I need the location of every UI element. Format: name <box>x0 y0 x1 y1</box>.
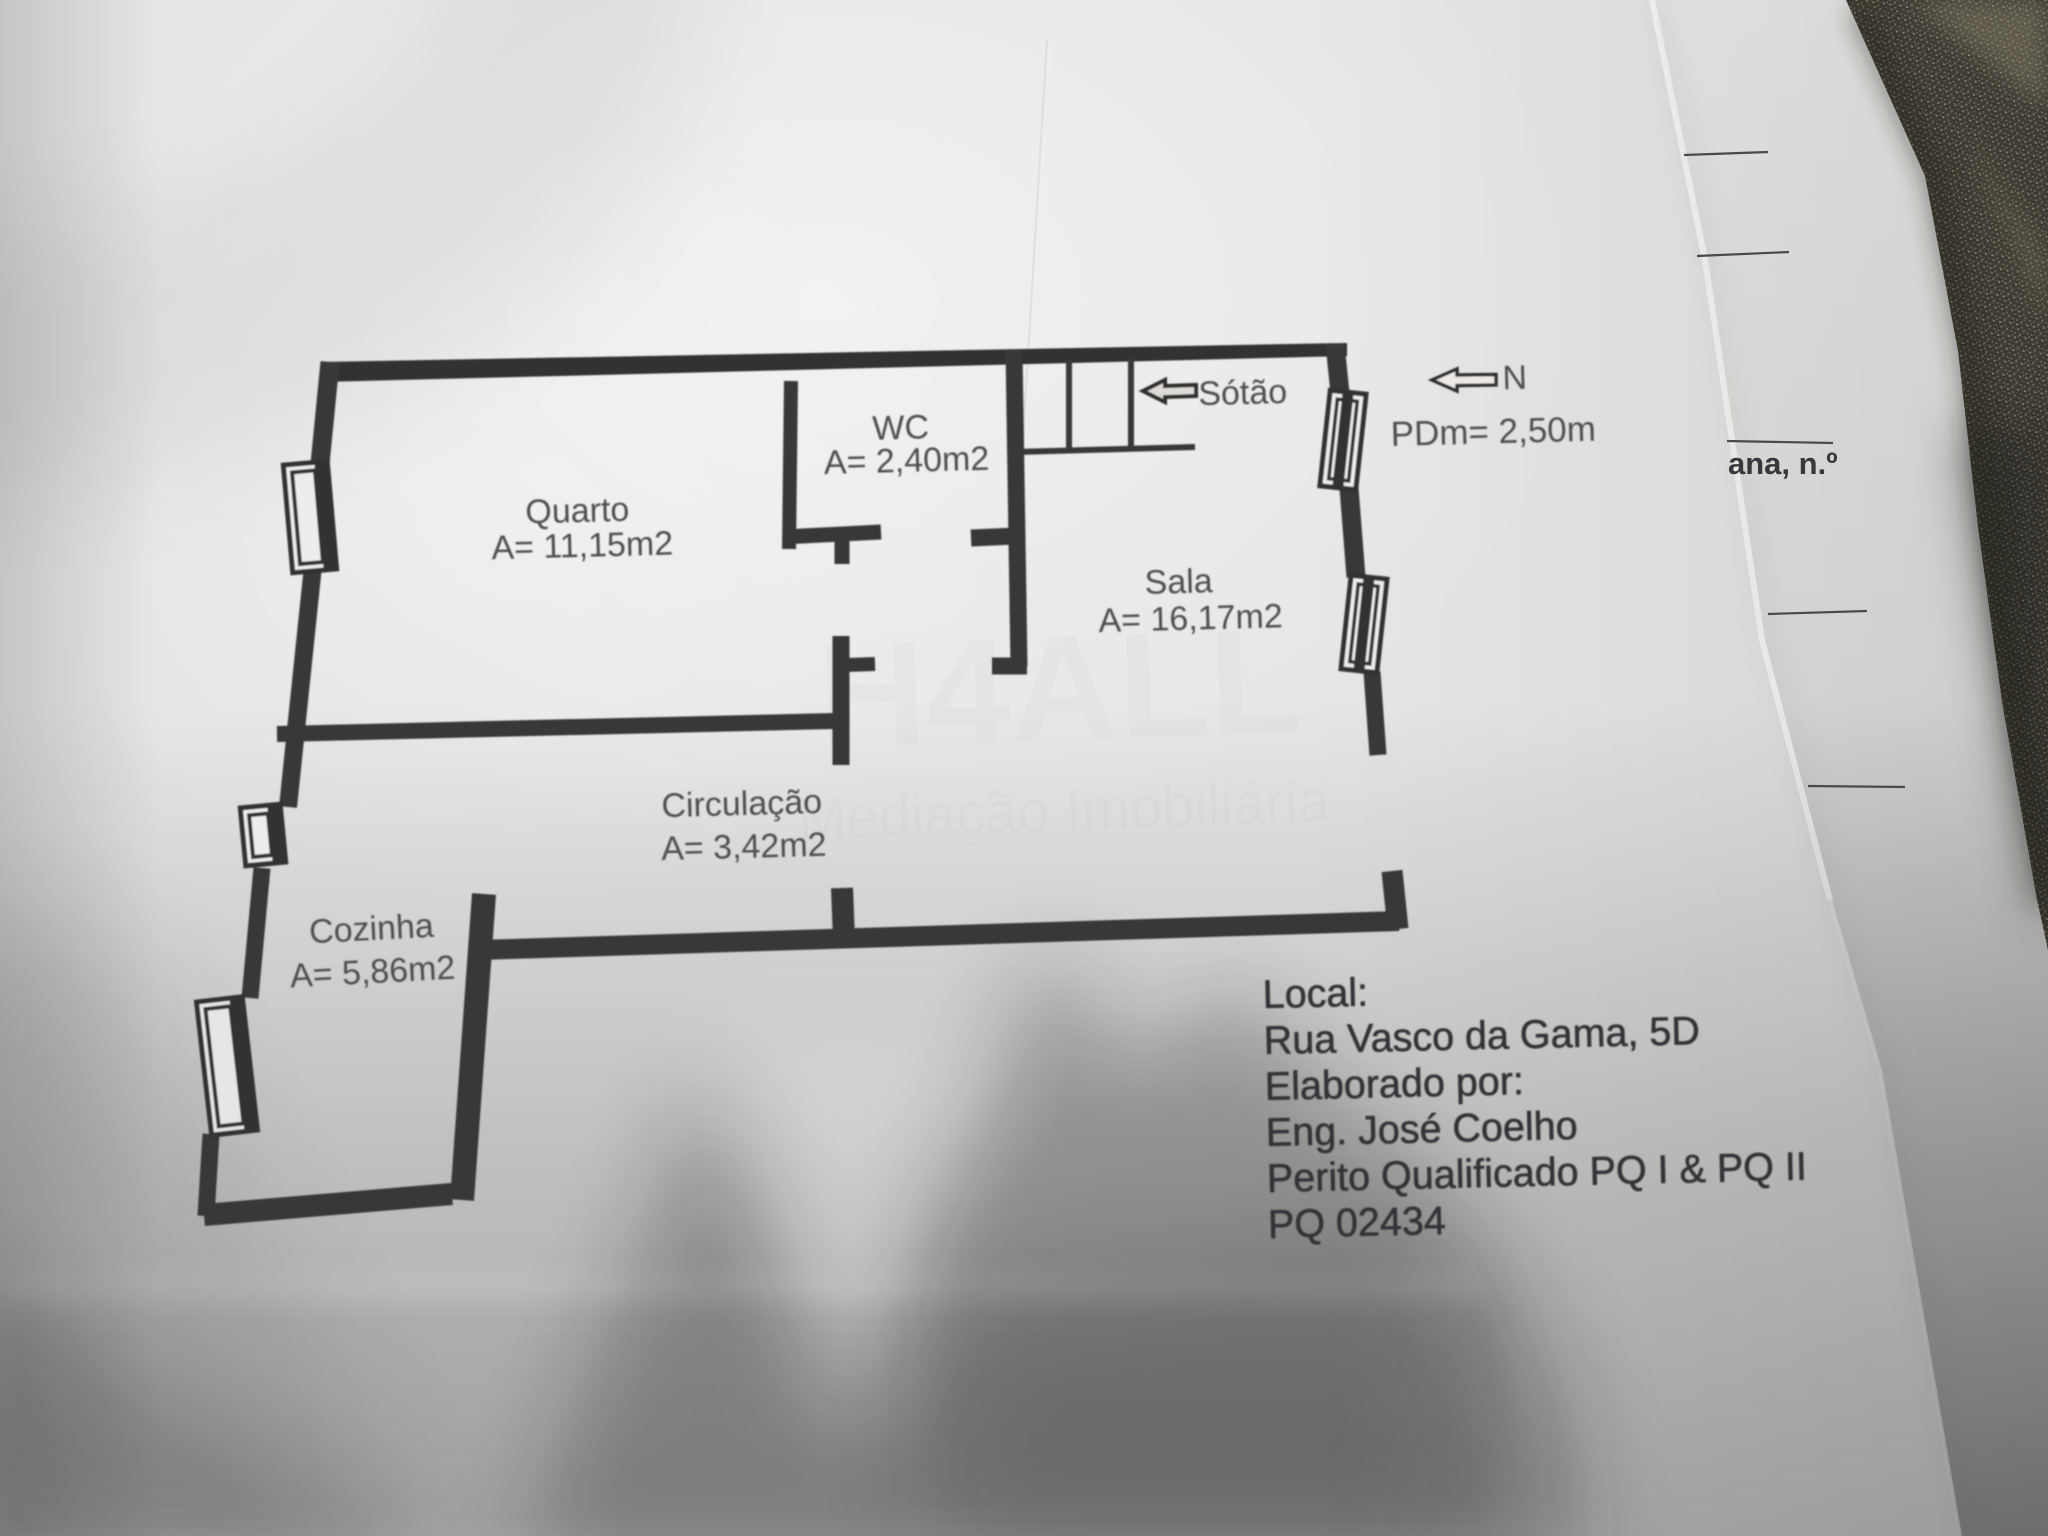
svg-text:A= 11,15m2: A= 11,15m2 <box>491 525 674 568</box>
svg-text:ana, n.º: ana, n.º <box>1728 446 1838 481</box>
svg-text:Local:: Local: <box>1262 971 1368 1017</box>
svg-text:Sótão: Sótão <box>1198 373 1288 413</box>
svg-text:Eng. José Coelho: Eng. José Coelho <box>1265 1104 1578 1155</box>
svg-text:A= 3,42m2: A= 3,42m2 <box>661 826 827 868</box>
svg-text:A= 2,40m2: A= 2,40m2 <box>823 440 989 482</box>
svg-text:PDm= 2,50m: PDm= 2,50m <box>1390 410 1596 454</box>
svg-text:Cozinha: Cozinha <box>308 907 435 951</box>
svg-text:N: N <box>1502 359 1528 398</box>
svg-text:Elaborado por:: Elaborado por: <box>1264 1059 1524 1109</box>
svg-text:PQ 02434: PQ 02434 <box>1267 1199 1446 1247</box>
svg-text:A= 16,17m2: A= 16,17m2 <box>1098 597 1283 640</box>
svg-text:Sala: Sala <box>1144 562 1213 602</box>
svg-text:Circulação: Circulação <box>661 783 823 825</box>
